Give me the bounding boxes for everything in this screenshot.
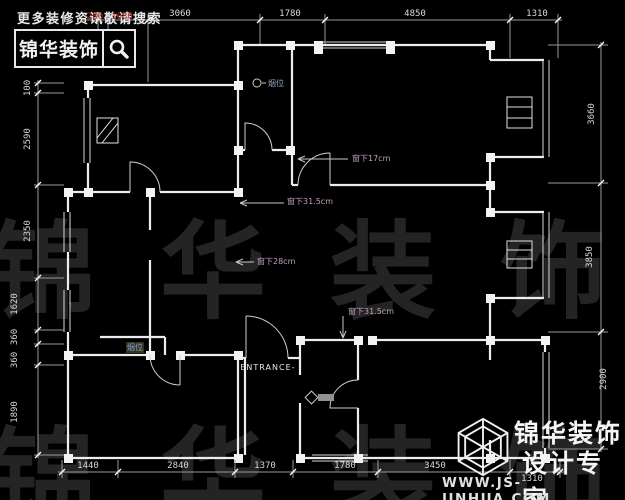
sill-note-17cm: 窗下17cm: [352, 153, 390, 164]
dim-top-1310: 1310: [526, 9, 548, 19]
dim-top-1080: 1080: [111, 12, 133, 22]
dim-left-2350: 2350: [23, 220, 33, 242]
sill-note-31-5cm-b: 窗下31.5cm: [348, 306, 394, 317]
cube-logo-icon: [452, 416, 514, 478]
brand-name: 锦华装饰: [16, 35, 102, 62]
dim-bottom-1440: 1440: [77, 461, 99, 471]
dim-bottom-3450: 3450: [424, 461, 446, 471]
brand-watermark-url: WWW.JS-JINHUA.COM: [442, 475, 625, 500]
windows: [64, 42, 549, 461]
dim-top-4850: 4850: [404, 9, 426, 19]
dim-right-2900: 2900: [599, 368, 609, 390]
entry-diamond-marker: [305, 391, 318, 404]
sill-note-28cm: 窗下28cm: [257, 256, 295, 267]
detail-boxes: [97, 97, 532, 268]
dim-top-1780: 1780: [279, 9, 301, 19]
dim-right-3660: 3660: [587, 103, 597, 125]
dim-left-1890: 1890: [10, 401, 20, 423]
fixture-block: [318, 394, 334, 401]
search-icon: [104, 31, 134, 66]
floor-plan-canvas: 锦华装饰 锦华装饰: [0, 0, 625, 500]
dim-right-3850: 3850: [585, 246, 595, 268]
brand-search-box[interactable]: 锦华装饰: [14, 29, 136, 68]
dim-bottom-1780: 1780: [334, 461, 356, 471]
flue-marker-circle: [253, 79, 261, 87]
brand-watermark: 锦华装饰 设计专家 WWW.JS-JINHUA.COM: [450, 414, 625, 494]
dim-left-360a: 360: [10, 329, 20, 345]
dim-bottom-2840: 2840: [167, 461, 189, 471]
dimension-lines: [34, 14, 608, 478]
dim-left-100: 100: [23, 80, 33, 96]
dim-left-360b: 360: [10, 352, 20, 368]
flue-label-top: 烟位: [268, 78, 284, 89]
entrance-label: -ENTRANCE-: [236, 363, 295, 372]
dim-left-1620: 1620: [10, 293, 20, 315]
sill-note-31-5cm-a: 窗下31.5cm: [287, 196, 333, 207]
dim-left-2590: 2590: [23, 128, 33, 150]
flue-label-kitchen: 烟位: [126, 342, 144, 353]
dim-top-3060: 3060: [169, 9, 191, 19]
dim-top-280: 280: [87, 12, 103, 22]
dim-bottom-1370: 1370: [254, 461, 276, 471]
